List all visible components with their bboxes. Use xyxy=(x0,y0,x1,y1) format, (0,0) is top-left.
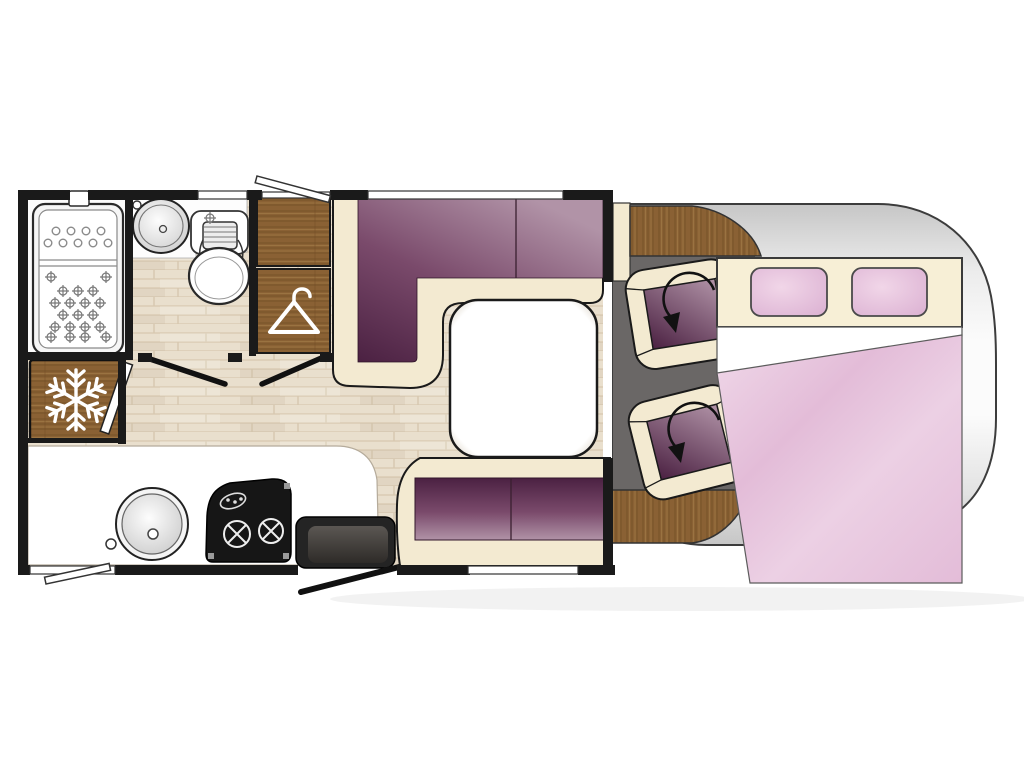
cab-side-shelf xyxy=(613,203,630,281)
washbasin xyxy=(133,199,189,253)
bed-pillow-left xyxy=(751,268,827,316)
basin-knob xyxy=(133,201,141,209)
bed-duvet xyxy=(717,335,962,583)
basin-drain xyxy=(160,226,167,233)
window-bench xyxy=(468,566,578,574)
sink-tap-knob xyxy=(106,539,116,549)
window-dinette xyxy=(368,191,563,199)
dinette-table xyxy=(450,300,597,457)
kitchen-hob xyxy=(206,479,291,562)
bed-pillow-right xyxy=(852,268,927,316)
shower-tray xyxy=(33,204,123,354)
toilet-bowl xyxy=(189,248,249,304)
dinette-bench xyxy=(397,458,610,566)
entry-door-swing xyxy=(301,567,399,592)
entry-step xyxy=(296,517,395,568)
toilet-cistern xyxy=(203,222,237,249)
wardrobe xyxy=(257,196,330,353)
window-bathroom xyxy=(198,191,247,199)
bench-cushion xyxy=(415,478,605,540)
ground-shadow xyxy=(330,587,1024,611)
floorplan-drawing xyxy=(0,0,1024,768)
drop-down-bed xyxy=(717,258,962,583)
toilet xyxy=(189,211,249,304)
floorplan-canvas xyxy=(0,0,1024,768)
shower-head-tab xyxy=(69,191,89,206)
sink-drain xyxy=(148,529,158,539)
